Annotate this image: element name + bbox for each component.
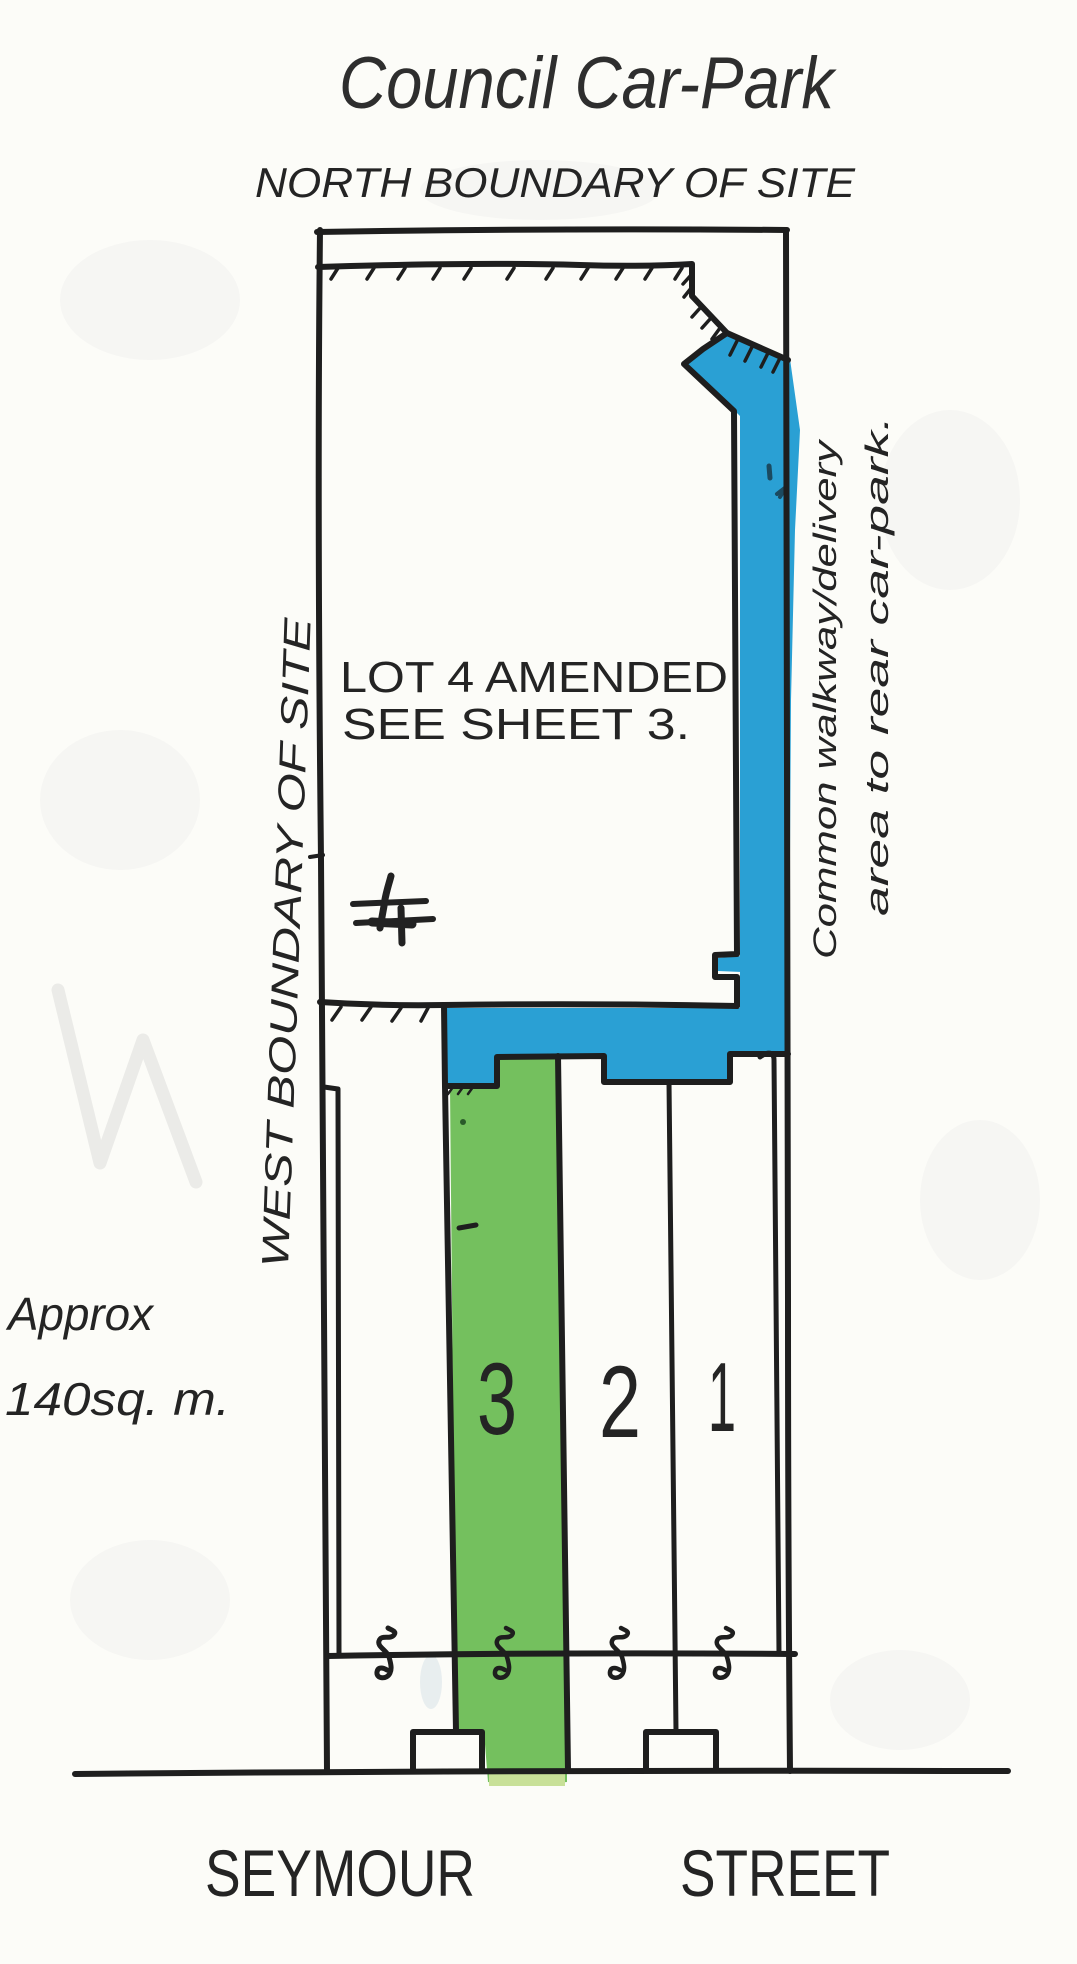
svg-text:1: 1: [708, 1342, 736, 1452]
svg-text:Common walkway/delivery: Common walkway/delivery: [807, 438, 843, 959]
svg-text:area to rear car-park.: area to rear car-park.: [859, 416, 895, 916]
svg-text:Council Car-Park: Council Car-Park: [339, 43, 837, 124]
svg-text:STREET: STREET: [680, 1836, 890, 1910]
svg-text:Approx: Approx: [5, 1288, 155, 1340]
svg-text:NORTH BOUNDARY OF SITE: NORTH BOUNDARY OF SITE: [255, 159, 856, 206]
svg-text:LOT 4 AMENDED: LOT 4 AMENDED: [340, 653, 728, 702]
svg-text:2: 2: [599, 1345, 641, 1459]
svg-text:140sq. m.: 140sq. m.: [5, 1373, 230, 1425]
svg-text:3: 3: [477, 1342, 517, 1456]
svg-text:SEYMOUR: SEYMOUR: [205, 1836, 475, 1910]
svg-text:SEE SHEET 3.: SEE SHEET 3.: [342, 700, 690, 749]
